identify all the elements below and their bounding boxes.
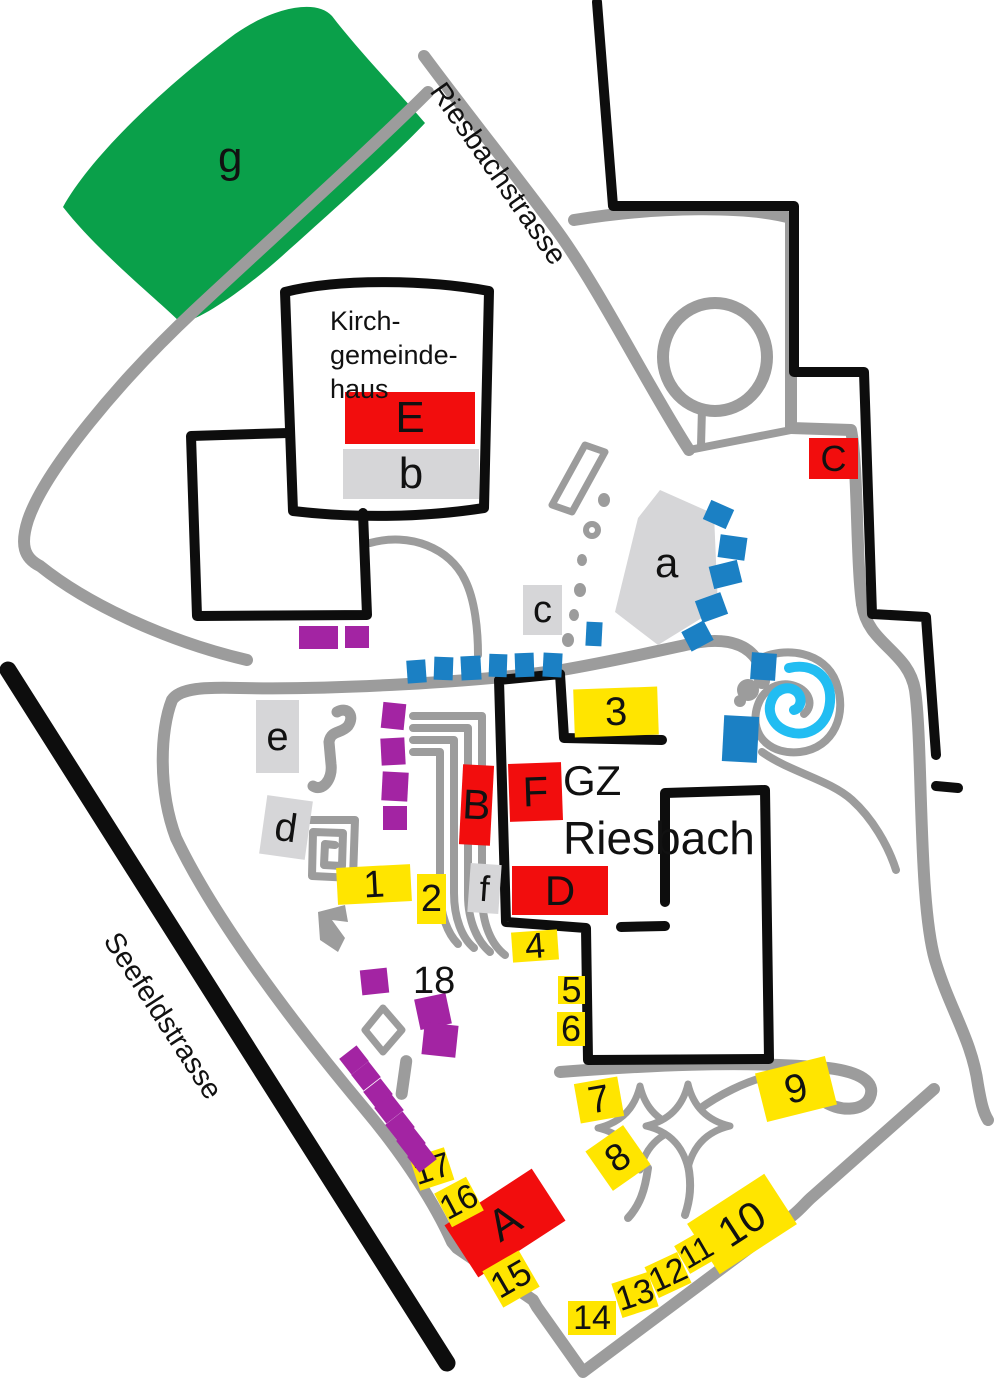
zone-14: 14	[568, 1301, 616, 1335]
area-label-a: a	[655, 542, 678, 584]
purple-marker	[381, 702, 407, 730]
zone-f: f	[467, 863, 501, 914]
blue-marker	[542, 653, 562, 678]
purple-marker	[299, 626, 338, 649]
path-dot-1	[598, 493, 610, 507]
spiral-cyan	[770, 667, 830, 734]
kirch-line-1: Kirch-	[330, 305, 458, 339]
building-label-kirchgemeindehaus: Kirch- gemeinde- haus	[330, 305, 458, 406]
hook-blob	[313, 710, 351, 787]
zone-2: 2	[417, 874, 446, 924]
path-dot-4	[574, 583, 586, 597]
zone-1: 1	[336, 864, 412, 905]
map-linework	[0, 0, 1000, 1380]
zone-7: 7	[574, 1076, 624, 1123]
zone-F: F	[508, 762, 563, 822]
path-spiral-southeast	[762, 752, 896, 870]
zone-5: 5	[558, 976, 585, 1004]
purple-marker	[383, 806, 407, 830]
purple-marker	[380, 737, 405, 765]
zone-b: b	[343, 449, 479, 499]
building-gz-notch	[621, 926, 665, 927]
blue-marker	[460, 655, 481, 680]
gz-name-label: Riesbach	[563, 815, 755, 861]
purple-marker	[360, 968, 389, 996]
blue-marker	[750, 652, 777, 681]
bar-blob	[395, 1054, 413, 1100]
zone-18-label: 18	[413, 962, 455, 1000]
boundary-parcel-tick	[936, 786, 958, 788]
blue-marker	[489, 654, 508, 678]
zone-B: B	[459, 764, 494, 846]
path-dot-6	[562, 633, 574, 647]
site-map: Riesbachstrasse Seefeldstrasse Kirch- ge…	[0, 0, 1000, 1380]
zone-c: c	[523, 585, 562, 635]
gz-label: GZ	[563, 760, 621, 802]
park-label-g: g	[218, 136, 242, 180]
blue-marker	[718, 534, 748, 561]
blue-marker	[406, 659, 427, 683]
building-annex	[191, 433, 367, 616]
zone-D: D	[512, 866, 608, 915]
purple-marker	[421, 1022, 458, 1057]
kirch-line-2: gemeinde-	[330, 339, 458, 373]
purple-marker	[345, 626, 369, 648]
tree-stem	[701, 408, 702, 446]
zone-6: 6	[557, 1012, 585, 1046]
zone-d: d	[259, 795, 313, 860]
diamond-path	[365, 1008, 402, 1052]
blue-marker	[722, 715, 759, 763]
path-annex-east	[370, 540, 478, 655]
zone-C: C	[809, 438, 858, 479]
kirch-line-3: haus	[330, 373, 458, 407]
blue-marker	[515, 653, 535, 678]
park-area-g	[63, 7, 425, 323]
path-star-tail-2	[685, 1165, 690, 1215]
arrow-blob	[318, 905, 348, 952]
tree-ring	[663, 303, 767, 411]
boundary-east	[862, 604, 988, 1120]
path-dot-3	[577, 554, 587, 566]
path-dot-5	[569, 609, 579, 621]
blue-marker	[434, 657, 454, 681]
spiral-blob-3	[734, 695, 746, 707]
zone-4: 4	[511, 929, 559, 962]
zone-3: 3	[573, 687, 659, 738]
zone-e: e	[256, 700, 299, 773]
path-dot-2-hole	[589, 527, 595, 533]
ramp-outline	[552, 445, 605, 512]
blue-marker	[585, 622, 602, 647]
purple-marker	[381, 771, 408, 801]
